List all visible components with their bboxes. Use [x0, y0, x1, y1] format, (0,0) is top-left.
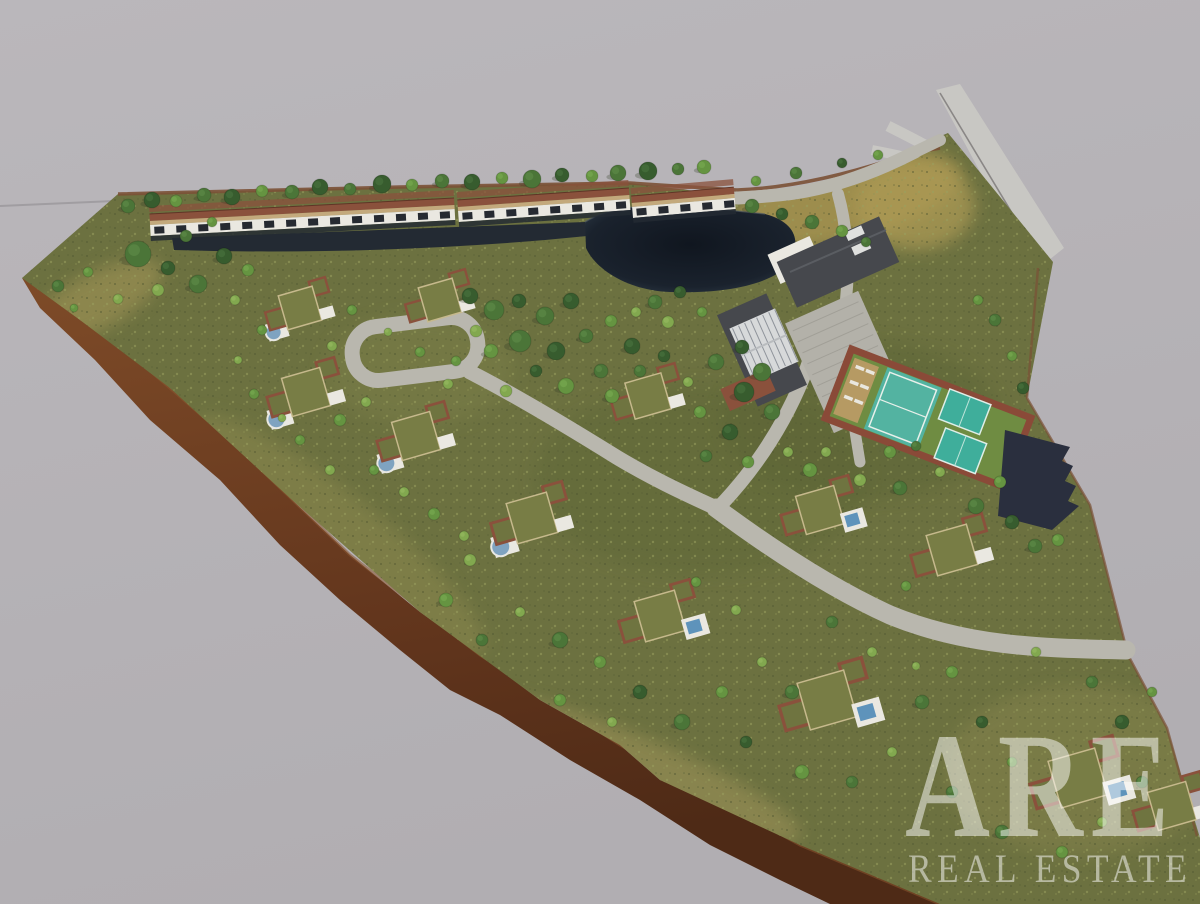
tree-highlight: [258, 187, 263, 192]
tree-highlight: [486, 346, 492, 352]
townhouse-window: [636, 208, 647, 216]
townhouse-window: [702, 202, 713, 210]
tree-highlight: [805, 465, 811, 471]
tree-highlight: [702, 452, 707, 457]
tree-highlight: [607, 317, 612, 322]
tree-highlight: [948, 668, 953, 673]
tree-highlight: [314, 181, 321, 188]
tree-highlight: [596, 366, 602, 372]
tree-highlight: [466, 176, 473, 183]
townhouse-window: [550, 206, 560, 214]
tree-highlight: [346, 185, 351, 190]
tree-highlight: [737, 385, 746, 394]
tree-highlight: [182, 232, 187, 237]
tree-highlight: [710, 356, 717, 363]
tree-highlight: [792, 169, 797, 174]
tree-highlight: [466, 556, 471, 561]
tree-highlight: [514, 296, 520, 302]
tree-highlight: [664, 318, 669, 323]
tree-highlight: [296, 436, 301, 441]
tree-highlight: [218, 250, 225, 257]
tree-highlight: [936, 468, 941, 473]
tree-highlight: [154, 286, 159, 291]
tree-highlight: [612, 167, 619, 174]
tree-highlight: [626, 340, 633, 347]
townhouse-window: [418, 212, 428, 220]
tree-highlight: [549, 344, 557, 352]
townhouse-window: [154, 226, 164, 234]
tree-highlight: [560, 380, 567, 387]
tree-highlight: [348, 306, 353, 311]
tree-highlight: [684, 378, 689, 383]
townhouse-window: [462, 212, 472, 220]
townhouse-window: [572, 204, 582, 212]
townhouse-window: [680, 204, 691, 212]
tree-highlight: [370, 466, 375, 471]
tree-highlight: [699, 162, 705, 168]
tree-highlight: [71, 305, 75, 309]
tree-highlight: [752, 177, 757, 182]
tree-highlight: [554, 634, 561, 641]
tree-highlight: [54, 282, 59, 287]
tree-highlight: [912, 442, 917, 447]
tree-highlight: [287, 187, 293, 193]
tree-highlight: [525, 172, 533, 180]
tree-highlight: [336, 416, 341, 421]
tree-highlight: [974, 296, 979, 301]
townhouse-window: [440, 211, 450, 219]
tree-highlight: [632, 308, 637, 313]
tree-highlight: [472, 327, 477, 332]
tree-highlight: [660, 352, 665, 357]
tree-highlight: [868, 648, 873, 653]
tree-highlight: [718, 688, 723, 693]
tree-highlight: [608, 718, 613, 723]
townhouse-window: [484, 210, 494, 218]
tree-highlight: [84, 268, 89, 273]
tree-highlight: [650, 297, 656, 303]
tree-highlight: [226, 191, 233, 198]
tree-highlight: [452, 357, 457, 362]
tree-highlight: [1007, 517, 1013, 523]
tree-highlight: [787, 687, 793, 693]
tree-highlight: [235, 357, 239, 361]
tree-highlight: [778, 210, 783, 215]
townhouse-window: [242, 222, 252, 230]
tree-highlight: [199, 190, 205, 196]
tree-highlight: [856, 476, 861, 481]
tree-highlight: [1030, 541, 1036, 547]
tree-highlight: [692, 578, 697, 583]
tree-highlight: [441, 595, 447, 601]
townhouse-window: [308, 218, 318, 226]
tree-highlight: [913, 663, 917, 667]
tree-highlight: [244, 266, 249, 271]
tree-highlight: [676, 716, 683, 723]
townhouse-window: [330, 217, 340, 225]
tree-highlight: [1054, 536, 1059, 541]
tree-highlight: [797, 767, 803, 773]
tree-highlight: [430, 510, 435, 515]
watermark: ARE REAL ESTATE: [905, 703, 1192, 891]
tree-highlight: [279, 415, 283, 419]
tree-highlight: [532, 367, 537, 372]
tree-highlight: [886, 448, 891, 453]
tree-highlight: [747, 201, 753, 207]
tree-highlight: [828, 618, 833, 623]
tree-highlight: [326, 466, 331, 471]
tree-highlight: [565, 295, 572, 302]
tree-highlight: [498, 174, 503, 179]
tree-highlight: [674, 165, 679, 170]
tree-highlight: [737, 342, 743, 348]
tree-highlight: [581, 331, 587, 337]
tree-highlight: [258, 326, 263, 331]
tree-highlight: [128, 244, 140, 256]
tree-highlight: [744, 458, 749, 463]
tree-highlight: [478, 636, 483, 641]
tree-highlight: [758, 658, 763, 663]
townhouse-window: [506, 209, 516, 217]
townhouse-window: [264, 221, 274, 229]
townhouse-window: [352, 216, 362, 224]
tree-highlight: [1032, 648, 1037, 653]
tree-highlight: [1008, 352, 1013, 357]
tree-highlight: [696, 408, 701, 413]
tree-highlight: [516, 608, 521, 613]
tree-highlight: [191, 277, 199, 285]
tree-highlight: [636, 367, 641, 372]
tree-highlight: [250, 390, 255, 395]
tree-highlight: [464, 290, 471, 297]
tree-highlight: [538, 309, 546, 317]
tree-highlight: [902, 582, 907, 587]
watermark-subtitle-text: REAL ESTATE: [908, 846, 1192, 891]
render-canvas: ARE REAL ESTATE: [0, 0, 1200, 904]
tree-highlight: [400, 488, 405, 493]
townhouse-window: [594, 203, 604, 211]
tree-highlight: [416, 348, 421, 353]
tree-highlight: [172, 197, 177, 202]
tree-highlight: [557, 170, 563, 176]
tree-highlight: [635, 687, 641, 693]
tree-highlight: [607, 391, 613, 397]
watermark-logo-text: ARE: [905, 703, 1177, 869]
tree-highlight: [114, 295, 119, 300]
tree-highlight: [742, 738, 747, 743]
tree-highlight: [146, 194, 153, 201]
tree-highlight: [641, 164, 649, 172]
tree-highlight: [437, 176, 443, 182]
tree-highlight: [698, 308, 703, 313]
tree-highlight: [807, 217, 813, 223]
tree-highlight: [502, 387, 507, 392]
tree-highlight: [408, 181, 413, 186]
tree-highlight: [123, 201, 129, 207]
tree-highlight: [838, 227, 843, 232]
tree-highlight: [874, 151, 879, 156]
townhouse-window: [724, 200, 735, 208]
tree-highlight: [487, 303, 496, 312]
tree-highlight: [385, 329, 389, 333]
tree-highlight: [755, 365, 763, 373]
townhouse-window: [396, 214, 406, 222]
tree-highlight: [362, 398, 367, 403]
tree-highlight: [991, 316, 996, 321]
townhouse-window: [658, 206, 669, 214]
townhouse-window: [286, 219, 296, 227]
townhouse-window: [616, 201, 626, 209]
tree-highlight: [588, 172, 593, 177]
tree-highlight: [888, 748, 893, 753]
tree-highlight: [460, 532, 465, 537]
tree-highlight: [676, 288, 681, 293]
tree-highlight: [375, 177, 383, 185]
tree-highlight: [512, 333, 522, 343]
site-plan-render: ARE REAL ESTATE: [0, 0, 1200, 904]
townhouse-window: [220, 223, 230, 231]
tree-highlight: [784, 448, 789, 453]
tree-highlight: [848, 778, 853, 783]
tree-highlight: [732, 606, 737, 611]
townhouse-window: [528, 207, 538, 215]
tree-highlight: [208, 218, 213, 223]
tree-highlight: [328, 342, 333, 347]
tree-highlight: [822, 448, 827, 453]
tree-highlight: [231, 296, 236, 301]
tree-highlight: [895, 483, 901, 489]
tree-highlight: [596, 658, 601, 663]
tree-highlight: [1148, 688, 1153, 693]
tree-highlight: [970, 500, 977, 507]
tree-highlight: [1088, 678, 1093, 683]
townhouse-window: [374, 215, 384, 223]
tree-highlight: [556, 696, 561, 701]
tree-highlight: [862, 238, 867, 243]
tree-highlight: [724, 426, 731, 433]
tree-highlight: [444, 380, 449, 385]
townhouse-window: [198, 224, 208, 232]
tree-highlight: [996, 478, 1001, 483]
tree-highlight: [163, 263, 169, 269]
tree-highlight: [766, 406, 773, 413]
tree-highlight: [1019, 384, 1024, 389]
tree-highlight: [838, 159, 843, 164]
